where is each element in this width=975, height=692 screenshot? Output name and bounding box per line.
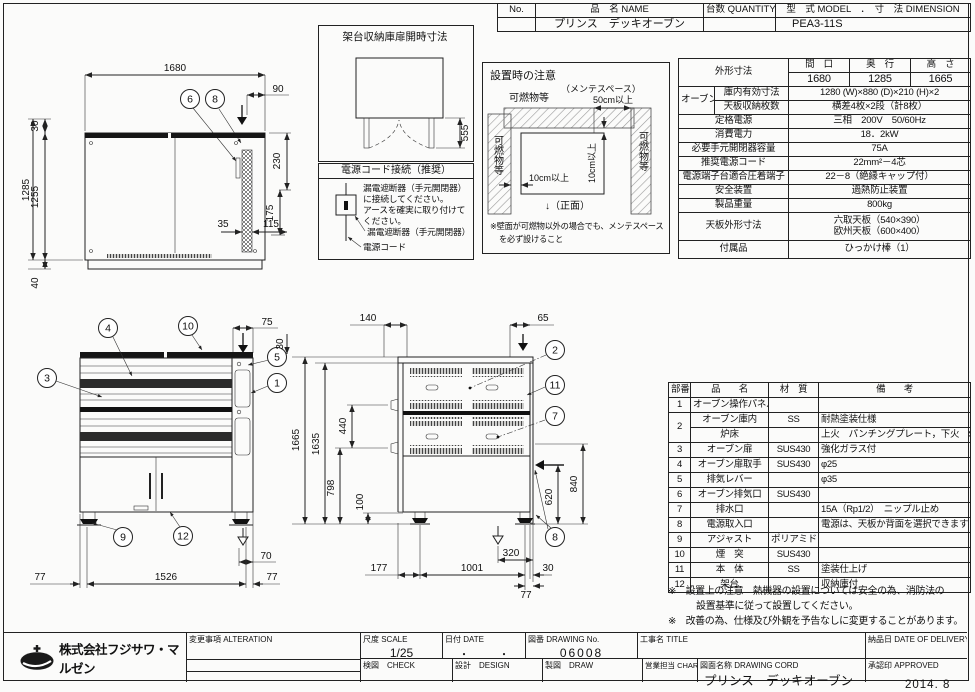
drawing-no-value: 06008	[526, 646, 637, 660]
spec-trays-value: 横差4枚×2段（計8枚）	[789, 101, 971, 115]
base-plinth-plan	[88, 260, 262, 269]
parts-row: 5 排気レバー φ35	[669, 473, 971, 488]
rear-vent-strip	[107, 253, 212, 258]
power-instruction: 漏電遮断器（手元開閉器）	[363, 182, 466, 193]
part-name: 炉床	[691, 428, 769, 443]
part-note: 上火 パンチングプレート，下火 SS	[819, 428, 971, 443]
cord-label: 電源コード	[363, 242, 406, 252]
part-no: 10	[669, 548, 691, 563]
install-note: ※壁面が可燃物以外の場合でも、メンテスペース	[490, 221, 663, 231]
vent-slot	[426, 434, 438, 439]
spec-width: 1680	[789, 73, 850, 87]
dim-label: 140	[360, 313, 377, 324]
install-caution-box: 設置時の注意 可燃物等 （メンテスペース） 50cm以上 10cm以上 10cm…	[482, 62, 670, 254]
dim-label: 440	[338, 417, 349, 434]
control-panel-upper	[235, 370, 250, 407]
door-handle-profile	[391, 442, 398, 454]
spec-traydim-line1: 六取天板（540×390）	[791, 216, 968, 227]
dim-label: 30	[275, 338, 286, 350]
dim-label: 1680	[164, 63, 187, 74]
project-title-label: 工事名 TITLE	[638, 633, 865, 646]
part-name: 電源取入口	[691, 518, 769, 533]
vent-slot	[486, 385, 498, 390]
install-note: を必ず設けること	[499, 234, 563, 244]
header-col-model: 型 式 MODEL ． 寸 法 DIMENSION	[776, 4, 971, 18]
oven-body-side	[403, 363, 530, 512]
part-name: アジャスト	[691, 533, 769, 548]
dim-label: 35	[217, 219, 229, 230]
parts-row: 2 オーブン庫内 SS 耐熱塗装仕様	[669, 413, 971, 428]
delivery-label: 納品日 DATE OF DELIVERY	[866, 633, 967, 646]
dim-label: 320	[503, 548, 520, 559]
power-inlet-arrow	[237, 105, 247, 125]
check-cell: 検図 CHECK	[360, 659, 452, 682]
part-no: 5	[669, 473, 691, 488]
vent-band	[410, 445, 462, 454]
callout-number: 9	[120, 532, 126, 544]
power-instruction: アースを確実に取り付けて	[363, 204, 465, 215]
date-label: 日付 DATE	[443, 633, 525, 646]
callout-2: 2	[546, 341, 565, 360]
callout-number: 2	[552, 345, 558, 357]
parts-row: 3 オーブン扉 SUS430 強化ガラス付	[669, 443, 971, 458]
spec-safety-label: 安全装置	[679, 185, 789, 199]
callout-8: 8	[546, 528, 565, 547]
callout-number: 8	[212, 94, 218, 106]
callout-number: 10	[182, 321, 194, 333]
part-no: 11	[669, 563, 691, 578]
design-label: 設計 DESIGN	[453, 659, 542, 672]
drawing-no-cell: 図番 DRAWING No. 06008	[525, 633, 637, 659]
part-note: 耐熱塗装仕様	[819, 413, 971, 428]
vent-band	[472, 400, 524, 409]
adjustable-foot-right	[229, 512, 253, 525]
parts-row: 10 煙 突 SUS430	[669, 548, 971, 563]
dim-label: 70	[260, 551, 272, 562]
top-plate-side	[398, 357, 533, 363]
dim-label: 77	[520, 590, 532, 601]
vent-band	[410, 400, 462, 409]
part-material	[769, 518, 819, 533]
plan-view-drawing: 1680 90 6 8	[25, 55, 315, 310]
vent-slot	[426, 385, 438, 390]
parts-table: 部番 品 名 材 質 備 考 1 オーブン操作パネル 2 オーブン庫内 SS 耐…	[668, 382, 971, 593]
part-note: φ25	[819, 458, 971, 473]
project-title-cell: 工事名 TITLE	[637, 633, 865, 659]
front-marker: ↓（正面）	[545, 200, 590, 212]
exhaust-slot	[236, 158, 240, 178]
part-note: φ35	[819, 473, 971, 488]
callout-number: 3	[44, 373, 50, 385]
dim-label: 798	[326, 479, 337, 496]
parts-h-note: 備 考	[819, 383, 971, 398]
spec-depth: 1285	[850, 73, 911, 87]
power-inlet-arrow	[518, 334, 528, 351]
dim-label: 1285	[21, 178, 32, 201]
dim-label: 40	[30, 277, 41, 289]
top-vent-strip	[85, 133, 265, 138]
callout-number: 7	[552, 411, 558, 423]
part-no: 3	[669, 443, 691, 458]
header-col-name: 品 名 NAME	[536, 4, 704, 18]
part-material: SUS430	[769, 548, 819, 563]
alteration-label: 変更事項 ALTERATION	[187, 633, 360, 647]
adjustable-foot-rear	[515, 512, 535, 524]
rack-cabinet	[356, 58, 443, 118]
callout-number: 11	[550, 380, 561, 392]
dim-label: 10cm以上	[529, 173, 569, 183]
alteration-cell: 変更事項 ALTERATION	[186, 633, 360, 682]
install-caution-drawing: 設置時の注意 可燃物等 （メンテスペース） 50cm以上 10cm以上 10cm…	[483, 63, 667, 251]
scale-label: 尺度 SCALE	[361, 633, 442, 646]
exhaust-outlet-arrow	[535, 460, 564, 470]
note-line: ※ 設置上の注意 熱機器の設置については安全の為、消防法の	[668, 584, 970, 599]
power-cord-drawing: 漏電遮断器（手元開閉器） に接続してください。 アースを確実に取り付けて くださ…	[319, 179, 471, 257]
part-name: 煙 突	[691, 548, 769, 563]
date-cell: 日付 DATE ・ ・	[442, 633, 525, 659]
rack-box-title: 架台収納庫扉開時寸法	[343, 30, 448, 43]
parts-row: 7 排水口 15A（Rp1/2） ニップル止め	[669, 503, 971, 518]
part-no: 6	[669, 488, 691, 503]
part-name: オーブン扉	[691, 443, 769, 458]
vent-band	[410, 368, 462, 377]
parts-h-no: 部番	[669, 383, 691, 398]
part-note	[819, 488, 971, 503]
part-note: 電源は、天板か背面を選択できます	[819, 518, 971, 533]
note-line: 設置基準に従って設置してください。	[668, 599, 970, 614]
part-no: 9	[669, 533, 691, 548]
side-view-drawing: 140 65 30	[280, 312, 610, 637]
deck-divider	[403, 411, 530, 415]
date-stamp: 2014. 8	[905, 679, 950, 691]
dim-label: 555	[460, 124, 471, 141]
spec-h-label: 高 さ	[911, 59, 971, 73]
spec-weight-label: 製品重量	[679, 199, 789, 213]
spec-accessory-value: ひっかけ棒（1）	[789, 241, 971, 259]
part-material	[769, 398, 819, 413]
drawing-name-value: プリンス デッキオーブン	[698, 670, 865, 689]
spec-cord-value: 22mm²－4芯	[789, 157, 971, 171]
install-box-title: 設置時の注意	[490, 68, 556, 82]
part-no: 1	[669, 398, 691, 413]
dim-label: 10cm以上	[587, 143, 597, 183]
callout-6: 6	[181, 90, 200, 109]
approved-label: 承認印 APPROVED	[866, 659, 967, 672]
callout-10: 10	[179, 317, 198, 336]
header-table: No. 品 名 NAME 台数 QUANTITY 型 式 MODEL ． 寸 法…	[497, 3, 971, 32]
scale-cell: 尺度 SCALE 1/25	[360, 633, 442, 659]
callout-number: 8	[552, 532, 558, 544]
part-material: SUS430	[769, 458, 819, 473]
spec-outer-label: 外形寸法	[679, 59, 789, 87]
part-name: 排気レバー	[691, 473, 769, 488]
part-note: 15A（Rp1/2） ニップル止め	[819, 503, 971, 518]
oven-door-lower	[80, 432, 232, 441]
spec-traydim-line2: 欧州天板（600×400）	[791, 227, 968, 238]
callout-9: 9	[114, 528, 133, 547]
parts-row: 炉床 上火 パンチングプレート，下火 SS	[669, 428, 971, 443]
check-label: 検図 CHECK	[361, 659, 452, 672]
parts-h-material: 材 質	[769, 383, 819, 398]
adjustable-foot-front	[410, 512, 430, 524]
dim-label: 77	[34, 572, 46, 583]
title-block: 株式会社フジサワ・マルゼン 変更事項 ALTERATION 尺度 SCALE 1…	[3, 632, 967, 682]
callout-number: 12	[177, 531, 189, 543]
part-name: オーブン扉取手	[691, 458, 769, 473]
company-name: 株式会社フジサワ・マルゼン	[59, 639, 186, 677]
draw-label: 製図 DRAW	[543, 659, 642, 672]
part-material	[769, 428, 819, 443]
callout-8: 8	[206, 90, 225, 109]
spec-consumption-value: 18．2kW	[789, 129, 971, 143]
charge-cell: 営業担当 CHARGE	[642, 659, 697, 682]
spec-consumption-label: 消費電力	[679, 129, 789, 143]
breaker-label: 漏電遮断器（手元開閉器）	[367, 226, 470, 237]
callout-3: 3	[38, 369, 57, 388]
callout-number: 4	[105, 323, 111, 335]
spec-d-label: 奥 行	[850, 59, 911, 73]
open-door-right	[429, 118, 434, 148]
callout-7: 7	[546, 407, 565, 426]
dim-label: 1665	[291, 428, 302, 451]
chimney-duct-plan	[242, 150, 252, 252]
dim-label: 50cm以上	[593, 95, 633, 105]
oven-door-upper	[80, 379, 232, 388]
part-material: SS	[769, 563, 819, 578]
dim-label: 100	[355, 493, 366, 510]
spec-table: 外形寸法 間 口 奥 行 高 さ 1680 1285 1665 オーブン 庫内有…	[678, 58, 971, 259]
header-val-no	[498, 18, 536, 32]
part-name: オーブン庫内	[691, 413, 769, 428]
dim-label: 77	[266, 572, 278, 583]
parts-row: 11 本 体 SS 塗装仕上げ	[669, 563, 971, 578]
open-door-left	[364, 118, 369, 148]
parts-row: 6 オーブン排気口 SUS430	[669, 488, 971, 503]
spec-power-value: 三相 200V 50/60Hz	[789, 115, 971, 129]
header-col-qty: 台数 QUANTITY	[704, 4, 776, 18]
spec-terminal-label: 電源端子台適合圧着端子	[679, 171, 789, 185]
spec-oven-label: オーブン	[679, 87, 715, 115]
dim-label: 30	[30, 120, 41, 132]
combustible-label-right: 可燃物等	[637, 131, 649, 171]
adjustable-foot-left	[77, 512, 101, 525]
part-name: 本 体	[691, 563, 769, 578]
spec-height: 1665	[911, 73, 971, 87]
part-note	[819, 533, 971, 548]
design-cell: 設計 DESIGN	[452, 659, 542, 682]
spec-inner-label: 庫内有効寸法	[715, 87, 789, 101]
control-panel-lower	[235, 418, 250, 455]
dim-label: 115	[263, 219, 279, 230]
part-material	[769, 473, 819, 488]
header-val-qty	[704, 18, 776, 32]
vent-slot	[486, 434, 498, 439]
dim-label: 90	[272, 84, 284, 95]
note-line: ※ 改善の為、仕様及び外観を予告なしに変更することがあります。	[668, 614, 970, 629]
company-logo-icon	[15, 643, 59, 673]
part-material: SUS430	[769, 488, 819, 503]
power-instruction: ください。	[363, 216, 406, 226]
spec-breaker-value: 75A	[789, 143, 971, 157]
vent-band	[472, 445, 524, 454]
spec-cord-label: 推奨電源コード	[679, 157, 789, 171]
dim-label: 75	[261, 317, 273, 328]
part-note	[819, 398, 971, 413]
dim-label: 1526	[155, 572, 178, 583]
model-number: PEA3-11S	[776, 18, 971, 32]
callout-number: 6	[187, 94, 193, 106]
door-swing-arc	[399, 120, 429, 148]
dim-label: 177	[371, 563, 388, 574]
power-instruction: に接続してください。	[363, 193, 448, 204]
part-note: 強化ガラス付	[819, 443, 971, 458]
front-view-drawing: 75	[22, 315, 285, 633]
parts-row: 1 オーブン操作パネル	[669, 398, 971, 413]
part-name: オーブン操作パネル	[691, 398, 769, 413]
spec-w-label: 間 口	[789, 59, 850, 73]
rack-door-drawing: 架台収納庫扉開時寸法 555	[319, 26, 471, 159]
rack-door-box: 架台収納庫扉開時寸法 555	[318, 25, 474, 162]
vent-band	[472, 368, 524, 377]
vent-band	[472, 417, 524, 426]
power-box-title: 電源コード接続（推奨）	[319, 164, 473, 179]
part-no: 7	[669, 503, 691, 518]
drawing-sheet: No. 品 名 NAME 台数 QUANTITY 型 式 MODEL ． 寸 法…	[0, 0, 975, 692]
maintenance-space-label: （メンテスペース）	[561, 84, 641, 94]
spec-inner-value: 1280 (W)×880 (D)×210 (H)×2	[789, 87, 971, 101]
spec-accessory-label: 付属品	[679, 241, 789, 259]
parts-h-name: 品 名	[691, 383, 769, 398]
dim-label: 230	[272, 152, 283, 169]
parts-row: 9 アジャスト ポリアミド	[669, 533, 971, 548]
part-name: 排水口	[691, 503, 769, 518]
part-note: 塗装仕上げ	[819, 563, 971, 578]
callout-12: 12	[174, 527, 193, 546]
part-no: 4	[669, 458, 691, 473]
spec-power-label: 定格電源	[679, 115, 789, 129]
combustible-label-top: 可燃物等	[509, 91, 549, 104]
delivery-cell: 納品日 DATE OF DELIVERY	[865, 633, 967, 659]
spec-terminal-value: 22－8（絶縁キャップ付）	[789, 171, 971, 185]
callout-11: 11	[546, 376, 565, 395]
spec-weight-value: 800kg	[789, 199, 971, 213]
dim-label: 65	[537, 313, 549, 324]
spec-traydim-label: 天板外形寸法	[679, 213, 789, 241]
spec-traydim-value: 六取天板（540×390） 欧州天板（600×400）	[789, 213, 971, 241]
callout-4: 4	[99, 319, 118, 338]
position-marker-arrow	[238, 528, 248, 545]
company-cell: 株式会社フジサワ・マルゼン	[3, 633, 186, 682]
draw-cell: 製図 DRAW	[542, 659, 642, 682]
installation-notes: ※ 設置上の注意 熱機器の設置については安全の為、消防法の 設置基準に従って設置…	[668, 584, 970, 629]
position-marker-arrow	[493, 526, 503, 544]
combustible-label-left: 可燃物等	[492, 135, 504, 175]
part-no: 8	[669, 518, 691, 533]
drawing-name-cell: 図面名称 DRAWING CORD プリンス デッキオーブン	[697, 659, 865, 682]
dim-label: 30	[542, 563, 554, 574]
vent-band	[410, 417, 462, 426]
product-name: プリンス デッキオーブン	[536, 18, 704, 32]
drawing-no-label: 図番 DRAWING No.	[526, 633, 637, 646]
part-material: SUS430	[769, 443, 819, 458]
dim-label: 1001	[461, 563, 484, 574]
part-material: SS	[769, 413, 819, 428]
part-no: 2	[669, 413, 691, 443]
dim-label: 840	[569, 475, 580, 492]
door-swing-arc	[369, 120, 399, 148]
spec-safety-value: 過熱防止装置	[789, 185, 971, 199]
spec-trays-label: 天板収納枚数	[715, 101, 789, 115]
header-col-no: No.	[498, 4, 536, 18]
parts-row: 8 電源取入口 電源は、天板か背面を選択できます	[669, 518, 971, 533]
charge-label: 営業担当 CHARGE	[643, 659, 697, 672]
dim-label: 620	[544, 488, 555, 505]
part-material	[769, 503, 819, 518]
door-handle-profile	[391, 399, 398, 411]
dim-label: 1635	[311, 432, 322, 455]
wall-top	[504, 108, 634, 128]
deck-divider	[80, 407, 232, 412]
power-cord-box: 電源コード接続（推奨） 漏電遮断器（手元開閉器） に接続してください。 アースを…	[318, 163, 474, 260]
power-inlet-arrow	[238, 333, 248, 353]
part-material: ポリアミド	[769, 533, 819, 548]
parts-row: 4 オーブン扉取手 SUS430 φ25	[669, 458, 971, 473]
spec-breaker-label: 必要手元開閉器容量	[679, 143, 789, 157]
part-name: オーブン排気口	[691, 488, 769, 503]
part-note	[819, 548, 971, 563]
scale-value: 1/25	[361, 646, 442, 660]
